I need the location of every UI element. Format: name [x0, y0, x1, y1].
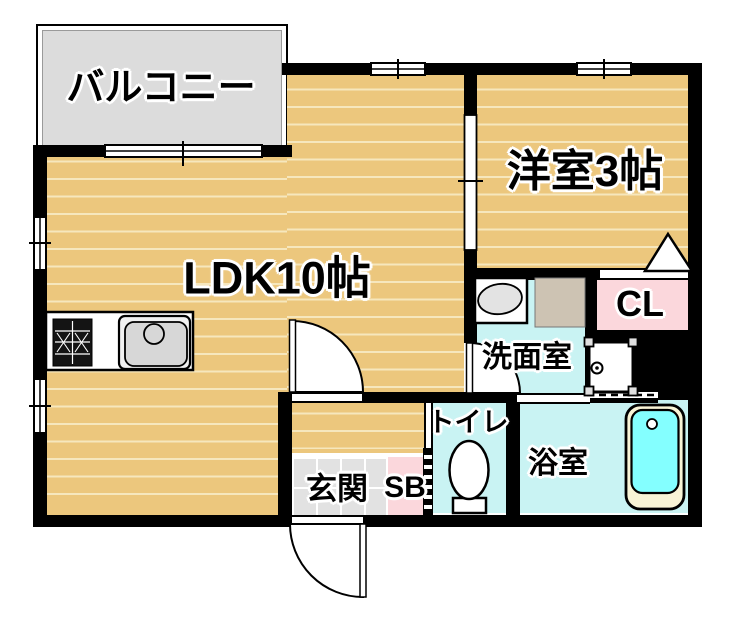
window-icon [371, 59, 425, 79]
room-label-washroom: 洗面室 [482, 343, 572, 373]
window-icon [29, 217, 51, 270]
sliding-door-icon [458, 115, 483, 250]
triangle-door-swing-icon [645, 234, 692, 271]
sliding-window-icon [105, 141, 262, 166]
washing-machine-pan-icon [585, 338, 638, 396]
room-label-closet: CL [616, 286, 664, 322]
room-label-entrance: 玄関 [306, 474, 368, 505]
room-label-shoe-box: SB [384, 473, 426, 503]
toilet-icon [450, 441, 489, 513]
stove-icon [53, 319, 92, 366]
sink-icon [119, 316, 190, 369]
room-label-bathroom: 浴室 [528, 449, 588, 479]
bathtub-icon [626, 405, 684, 509]
entrance-door-swing-icon [290, 524, 366, 597]
window-icon [577, 59, 631, 79]
room-label-ldk: LDK10帖 [183, 256, 371, 301]
room-label-balcony: バルコニー [66, 69, 255, 107]
washbasin-icon [475, 278, 527, 323]
door-swing-icon [290, 320, 364, 392]
window-icon [29, 379, 51, 433]
room-label-toilet: トイレ [428, 410, 509, 437]
washer-counter-icon [535, 278, 585, 327]
room-label-western-room: 洋室3帖 [507, 150, 663, 194]
floor-plan: バルコニー LDK10帖 洋室3帖 洗面室 CL トイレ 浴室 玄関 SB [0, 0, 729, 626]
